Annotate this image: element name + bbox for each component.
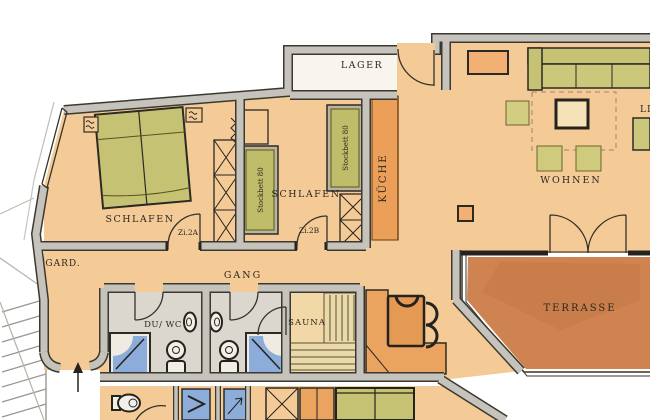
coffee-table [556, 100, 588, 128]
sofa [528, 48, 650, 90]
dresser-bedroom2 [244, 110, 268, 144]
label-terrasse: TERRASSE [543, 303, 616, 314]
label-gard: GARD. [45, 259, 80, 269]
shower-a [110, 333, 150, 375]
label-liege-clipped: LI [640, 105, 650, 115]
floor-plan-svg: SCHLAFEN SCHLAFEN LAGER KÜCHE WOHNEN LI … [0, 0, 650, 420]
lounger-clipped [633, 118, 650, 150]
nightstand-right [186, 108, 202, 122]
floor-cushion-2 [576, 146, 601, 171]
label-gang: GANG [224, 270, 262, 281]
wardrobe-bedroom1 [214, 140, 238, 246]
floor-plan: SCHLAFEN SCHLAFEN LAGER KÜCHE WOHNEN LI … [0, 0, 650, 420]
label-schlafen-middle: SCHLAFEN [271, 189, 340, 200]
floor-cushion-1 [537, 146, 562, 171]
side-table [506, 101, 529, 125]
plant-stand [458, 206, 473, 221]
sink-a [184, 313, 196, 332]
toilet-b [220, 341, 238, 374]
room-lager-floor [292, 50, 397, 92]
label-schlafen-left: SCHLAFEN [105, 214, 174, 225]
label-lager: LAGER [341, 60, 383, 71]
double-bed [95, 107, 191, 208]
nightstand-left [84, 117, 98, 132]
shower-b [246, 333, 286, 375]
label-wohnen: WOHNEN [540, 175, 601, 186]
label-du-wc: DU/ WC [144, 320, 182, 330]
label-kueche: KÜCHE [377, 153, 389, 202]
sideboard [468, 51, 508, 74]
toilet-a [167, 341, 185, 374]
label-zi2a: Zi.2A [178, 228, 199, 237]
sink-b [210, 313, 222, 332]
label-stockbett-right: Stockbett 80 [342, 125, 350, 170]
label-zi2b: Zi.2B [299, 226, 320, 235]
label-stockbett-left: Stockbett 80 [257, 167, 265, 212]
dining-table [388, 296, 424, 346]
label-sauna: SAUNA [288, 318, 326, 328]
